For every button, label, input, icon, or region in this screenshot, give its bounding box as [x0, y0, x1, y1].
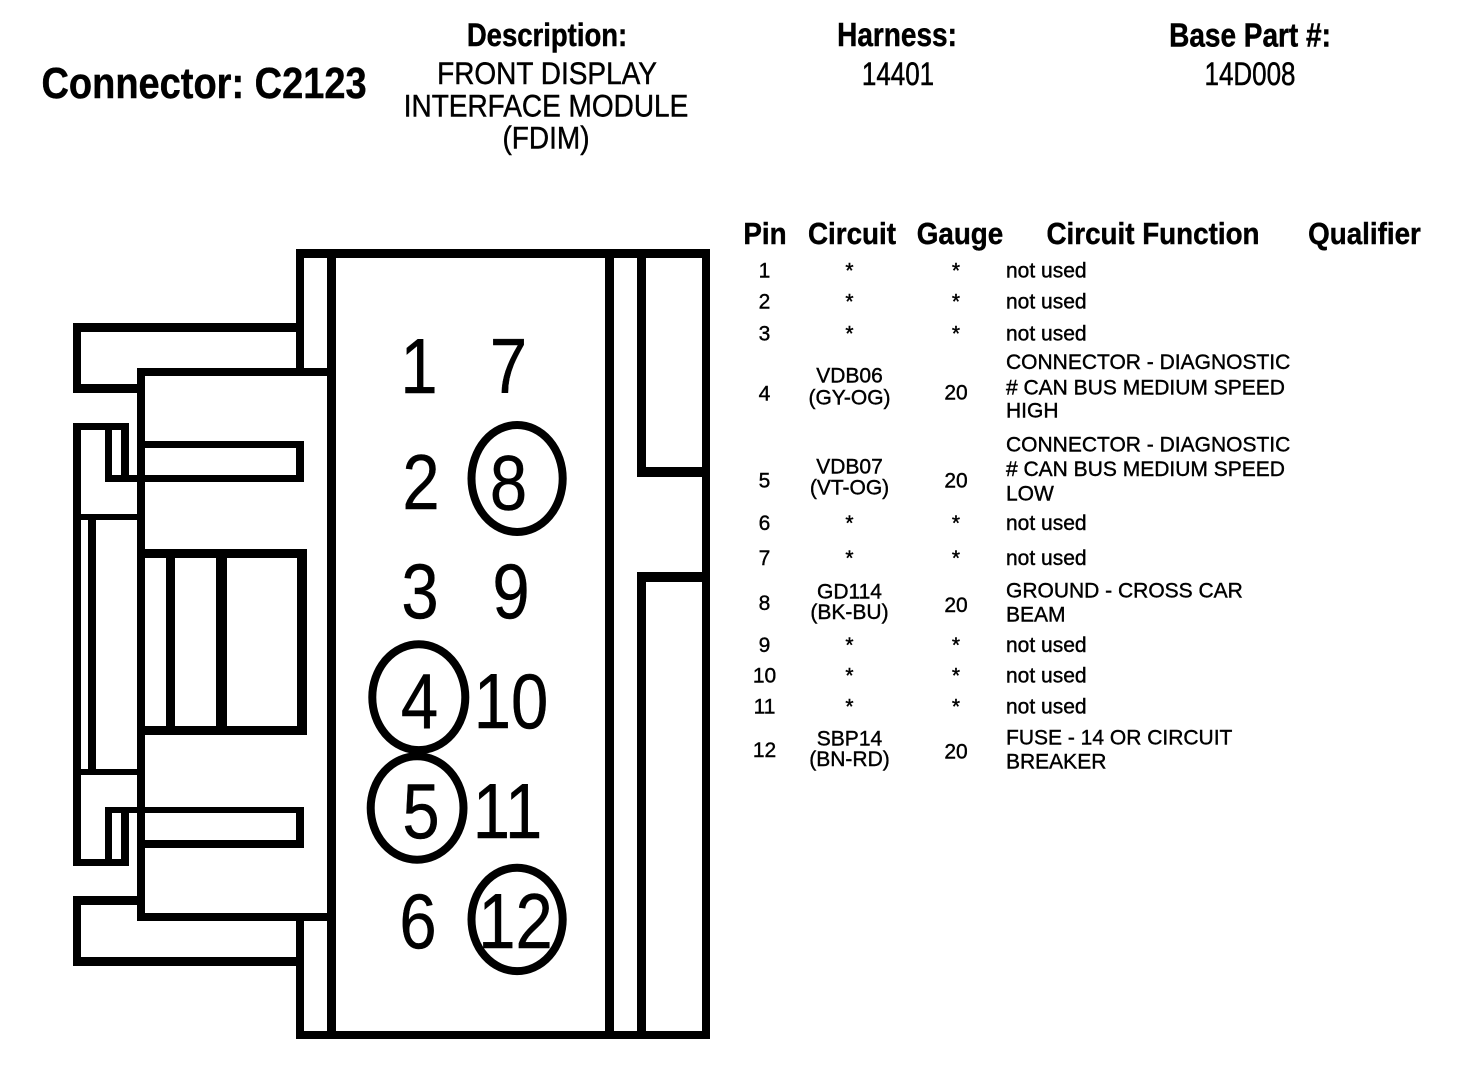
svg-text:*: *	[952, 322, 960, 345]
svg-text:10: 10	[474, 658, 549, 745]
svg-text:# CAN BUS MEDIUM SPEED: # CAN BUS MEDIUM SPEED	[1006, 458, 1285, 481]
svg-text:not used: not used	[1006, 291, 1087, 314]
svg-text:9: 9	[759, 634, 771, 657]
svg-text:SBP14: SBP14	[817, 727, 883, 750]
svg-text:not used: not used	[1006, 634, 1087, 657]
svg-text:not used: not used	[1006, 547, 1087, 570]
svg-text:CONNECTOR - DIAGNOSTIC: CONNECTOR - DIAGNOSTIC	[1006, 351, 1290, 374]
svg-text:*: *	[952, 260, 960, 283]
svg-text:Circuit: Circuit	[808, 218, 896, 251]
svg-text:*: *	[845, 512, 853, 535]
svg-text:VDB06: VDB06	[816, 365, 883, 388]
svg-text:Circuit Function: Circuit Function	[1046, 218, 1259, 251]
svg-text:2: 2	[402, 439, 439, 526]
svg-text:*: *	[952, 291, 960, 314]
svg-text:*: *	[952, 634, 960, 657]
svg-text:11: 11	[473, 768, 543, 855]
svg-text:6: 6	[399, 878, 436, 965]
svg-text:3: 3	[401, 548, 438, 635]
svg-text:not used: not used	[1006, 696, 1087, 719]
svg-text:*: *	[952, 547, 960, 570]
svg-text:7: 7	[759, 547, 771, 570]
svg-text:12: 12	[478, 878, 553, 965]
svg-text:BREAKER: BREAKER	[1006, 750, 1106, 773]
svg-text:not used: not used	[1006, 512, 1087, 535]
svg-text:FRONT DISPLAY: FRONT DISPLAY	[437, 56, 657, 91]
svg-text:*: *	[845, 634, 853, 657]
svg-text:Qualifier: Qualifier	[1308, 218, 1421, 251]
svg-text:not used: not used	[1006, 665, 1087, 688]
svg-text:9: 9	[492, 548, 529, 635]
svg-text:GROUND - CROSS CAR: GROUND - CROSS CAR	[1006, 579, 1243, 602]
svg-text:Harness:: Harness:	[837, 17, 957, 54]
svg-text:14401: 14401	[862, 58, 934, 93]
svg-text:*: *	[845, 260, 853, 283]
svg-text:FUSE - 14 OR CIRCUIT: FUSE - 14 OR CIRCUIT	[1006, 727, 1233, 750]
svg-text:5: 5	[759, 470, 771, 493]
svg-text:6: 6	[759, 512, 771, 535]
svg-text:5: 5	[402, 768, 439, 855]
svg-text:*: *	[952, 512, 960, 535]
svg-text:*: *	[952, 696, 960, 719]
svg-text:Connector: C2123: Connector: C2123	[42, 59, 367, 108]
svg-text:*: *	[952, 665, 960, 688]
svg-text:10: 10	[753, 665, 776, 688]
svg-text:3: 3	[759, 322, 771, 345]
svg-text:(BN-RD): (BN-RD)	[809, 748, 889, 771]
svg-text:8: 8	[759, 592, 771, 615]
svg-text:not used: not used	[1006, 322, 1087, 345]
svg-text:4: 4	[759, 382, 771, 405]
svg-text:*: *	[845, 291, 853, 314]
svg-text:8: 8	[490, 440, 527, 527]
svg-text:20: 20	[944, 741, 967, 764]
svg-text:Description:: Description:	[467, 18, 627, 54]
svg-text:Pin: Pin	[743, 218, 786, 251]
svg-text:BEAM: BEAM	[1006, 603, 1066, 626]
svg-text:*: *	[845, 547, 853, 570]
svg-text:(GY-OG): (GY-OG)	[808, 387, 890, 410]
svg-text:*: *	[845, 665, 853, 688]
svg-text:2: 2	[759, 291, 771, 314]
svg-text:CONNECTOR - DIAGNOSTIC: CONNECTOR - DIAGNOSTIC	[1006, 434, 1290, 457]
svg-text:1: 1	[759, 260, 771, 283]
svg-text:not used: not used	[1006, 260, 1087, 283]
svg-text:(BK-BU): (BK-BU)	[810, 601, 888, 624]
svg-text:INTERFACE MODULE: INTERFACE MODULE	[404, 89, 689, 124]
svg-text:1: 1	[400, 323, 437, 410]
svg-text:# CAN BUS MEDIUM SPEED: # CAN BUS MEDIUM SPEED	[1006, 377, 1285, 400]
svg-text:4: 4	[401, 658, 438, 745]
svg-text:*: *	[845, 696, 853, 719]
svg-text:14D008: 14D008	[1204, 58, 1295, 93]
svg-text:LOW: LOW	[1006, 483, 1054, 506]
svg-text:Base Part #:: Base Part #:	[1169, 17, 1331, 54]
svg-text:20: 20	[944, 382, 967, 405]
svg-text:11: 11	[754, 696, 776, 719]
svg-text:HIGH: HIGH	[1006, 400, 1059, 423]
svg-text:20: 20	[944, 470, 967, 493]
svg-text:20: 20	[944, 594, 967, 617]
svg-text:VDB07: VDB07	[816, 456, 883, 479]
svg-text:(VT-OG): (VT-OG)	[810, 477, 889, 500]
svg-text:Gauge: Gauge	[917, 218, 1004, 251]
svg-text:7: 7	[490, 323, 527, 410]
svg-text:(FDIM): (FDIM)	[502, 121, 589, 156]
svg-text:12: 12	[753, 739, 776, 762]
svg-text:*: *	[845, 322, 853, 345]
